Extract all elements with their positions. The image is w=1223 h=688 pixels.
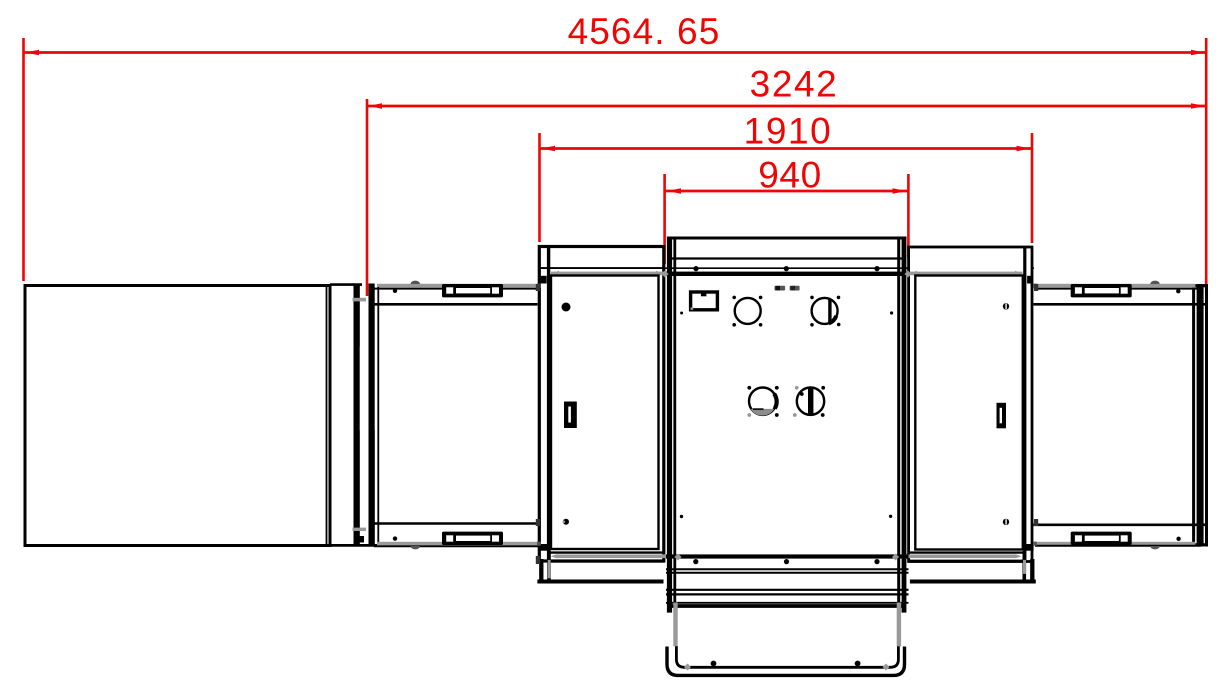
svg-text:940: 940 [758,155,822,196]
svg-text:1910: 1910 [744,111,833,152]
svg-text:4564. 65: 4564. 65 [568,11,721,52]
svg-text:3242: 3242 [750,64,839,105]
